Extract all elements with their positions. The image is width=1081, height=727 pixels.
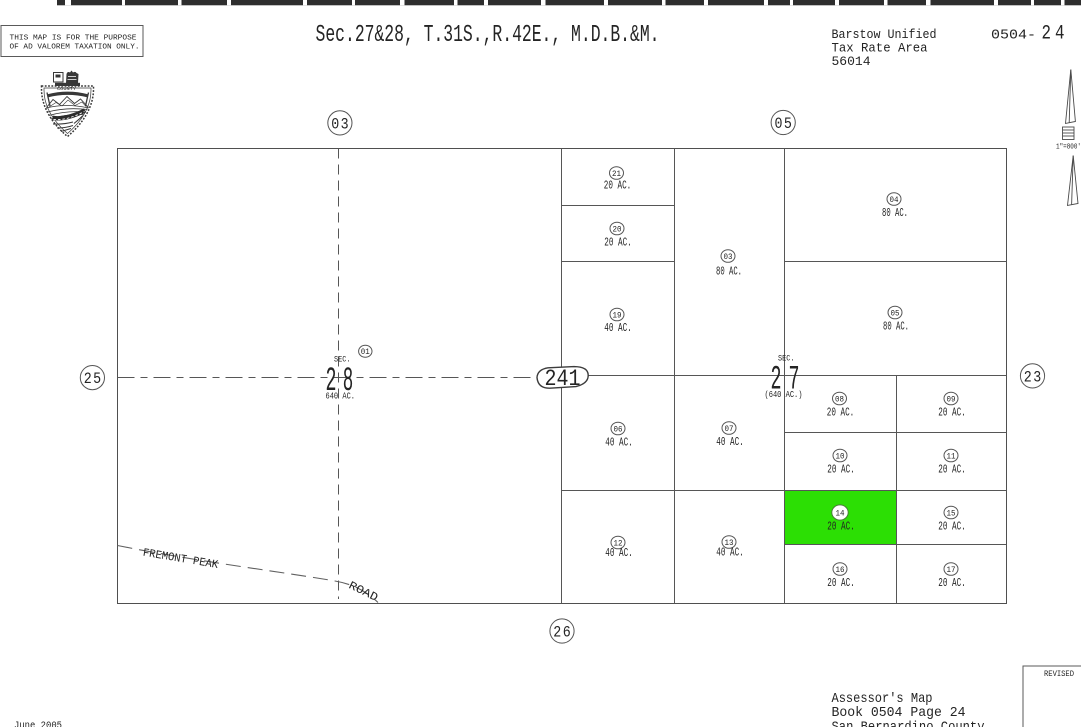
svg-text:10: 10 [836,452,845,462]
svg-text:20 AC.: 20 AC. [604,235,632,249]
svg-text:04: 04 [890,195,899,205]
svg-text:17: 17 [947,565,956,575]
svg-text:2: 2 [1042,23,1052,46]
svg-text:0: 0 [331,115,339,133]
svg-text:OF AD VALOREM TAXATION ONLY.: OF AD VALOREM TAXATION ONLY. [10,43,140,51]
svg-text:640 AC.: 640 AC. [326,391,356,402]
svg-text:0: 0 [775,115,783,133]
svg-text:19: 19 [613,311,622,321]
svg-text:40 AC.: 40 AC. [605,546,633,560]
svg-text:20 AC.: 20 AC. [938,520,966,534]
svg-text:20 AC.: 20 AC. [827,406,855,420]
svg-text:20 AC.: 20 AC. [827,520,855,534]
svg-text:09: 09 [947,395,956,405]
svg-text:6: 6 [563,623,571,641]
svg-text:15: 15 [947,509,956,519]
svg-text:Sec.27&28, T.31S.,R.42E., M.D.: Sec.27&28, T.31S.,R.42E., M.D.B.&M. [316,22,660,49]
svg-text:40 AC.: 40 AC. [604,321,632,335]
svg-text:06: 06 [614,425,623,435]
svg-text:COUNTY: COUNTY [57,86,76,92]
svg-text:40 AC.: 40 AC. [605,435,633,449]
svg-text:20 AC.: 20 AC. [938,576,966,590]
svg-text:56014: 56014 [832,54,871,69]
svg-text:80 AC.: 80 AC. [716,265,742,279]
svg-text:03: 03 [724,252,733,262]
svg-text:80 AC.: 80 AC. [882,206,908,220]
svg-text:08: 08 [835,395,844,405]
svg-text:16: 16 [836,565,845,575]
svg-text:01: 01 [361,349,370,357]
svg-text:05: 05 [891,309,900,319]
svg-text:20 AC.: 20 AC. [938,406,966,420]
svg-text:2: 2 [553,623,561,641]
svg-text:(640 AC.): (640 AC.) [765,389,803,400]
svg-text:REVISED: REVISED [1044,671,1074,679]
svg-text:3: 3 [1033,368,1041,386]
svg-text:20 AC.: 20 AC. [938,463,966,477]
svg-text:20: 20 [613,225,622,235]
svg-text:20 AC.: 20 AC. [604,179,632,193]
svg-text:40 AC.: 40 AC. [716,435,744,449]
svg-text:80 AC.: 80 AC. [883,320,909,334]
svg-text:5: 5 [93,370,101,388]
svg-text:June 2005: June 2005 [14,720,62,727]
svg-text:2: 2 [1024,368,1032,386]
svg-text:San Bernardino County: San Bernardino County [832,720,985,727]
svg-text:40 AC.: 40 AC. [716,545,744,559]
svg-text:2: 2 [84,370,92,388]
svg-text:THIS MAP IS FOR THE PURPOSE: THIS MAP IS FOR THE PURPOSE [10,35,137,43]
svg-text:3: 3 [341,115,349,133]
svg-text:1"=800': 1"=800' [1056,144,1081,152]
svg-text:20 AC.: 20 AC. [827,463,855,477]
svg-text:11: 11 [947,452,956,462]
svg-text:0504-: 0504- [991,29,1036,44]
svg-text:5: 5 [784,115,792,133]
svg-text:07: 07 [725,424,734,434]
svg-text:241: 241 [545,366,581,392]
svg-text:20 AC.: 20 AC. [827,576,855,590]
svg-text:4: 4 [1055,23,1065,46]
svg-text:14: 14 [836,509,845,519]
